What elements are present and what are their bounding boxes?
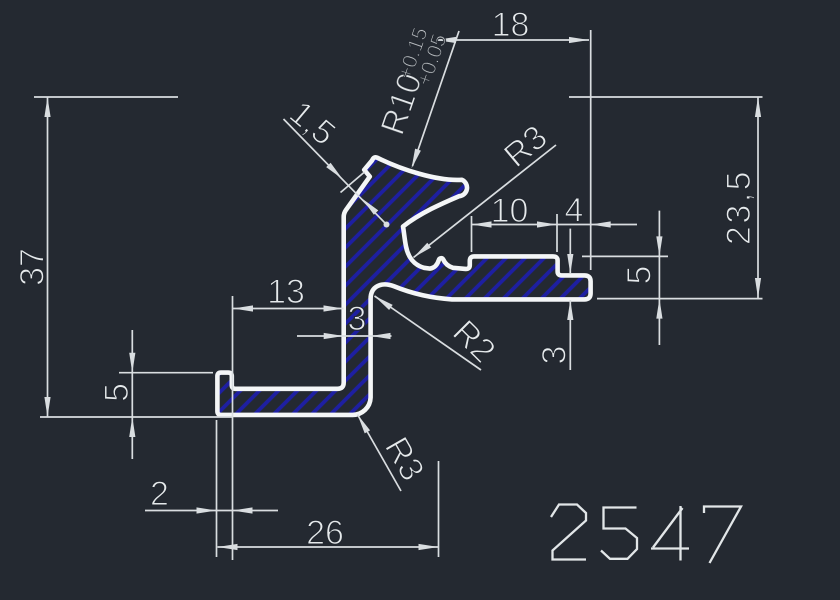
svg-text:3: 3 bbox=[348, 300, 367, 338]
svg-text:5: 5 bbox=[98, 383, 136, 402]
svg-text:10: 10 bbox=[491, 192, 529, 230]
svg-text:13: 13 bbox=[267, 273, 305, 311]
svg-text:23,5: 23,5 bbox=[720, 169, 758, 245]
svg-text:18: 18 bbox=[492, 6, 530, 44]
svg-text:26: 26 bbox=[306, 514, 344, 552]
svg-text:3: 3 bbox=[536, 346, 574, 365]
svg-text:2: 2 bbox=[150, 475, 169, 513]
svg-text:5: 5 bbox=[621, 266, 659, 285]
svg-text:4: 4 bbox=[565, 192, 584, 230]
svg-text:37: 37 bbox=[14, 248, 52, 286]
